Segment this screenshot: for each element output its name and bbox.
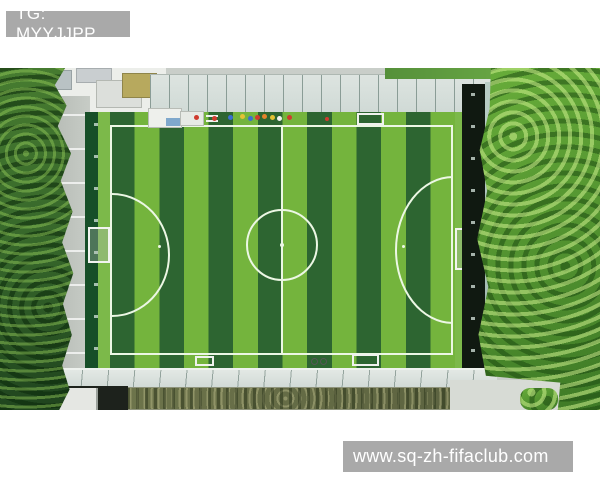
bicycle bbox=[320, 358, 327, 365]
bicycle bbox=[311, 358, 318, 365]
equipment-dot bbox=[255, 115, 260, 120]
equipment-dot bbox=[262, 114, 267, 119]
sideline-bench bbox=[195, 356, 214, 366]
goal-left bbox=[88, 227, 110, 263]
sideline-bench bbox=[352, 354, 379, 366]
watermark-top-left-text: TG: MYYJJPP bbox=[16, 4, 120, 44]
equipment-dot bbox=[287, 115, 292, 120]
page: TG: MYYJJPP www.sq-zh-fifaclub.com bbox=[0, 0, 600, 480]
penalty-spot-left bbox=[158, 245, 161, 248]
equipment-dot bbox=[240, 114, 245, 119]
equipment-dot bbox=[277, 116, 282, 121]
equipment-dot bbox=[194, 115, 199, 120]
equipment-dot bbox=[248, 116, 253, 121]
equipment-dot bbox=[212, 116, 217, 121]
sideline-table bbox=[180, 111, 204, 126]
equipment-dot bbox=[228, 115, 233, 120]
blue-mat bbox=[166, 118, 180, 126]
trees-right bbox=[476, 68, 600, 410]
aerial-photo bbox=[0, 68, 600, 410]
bushes bbox=[520, 388, 558, 410]
watermark-top-left: TG: MYYJJPP bbox=[6, 11, 130, 37]
penalty-spot-right bbox=[402, 245, 405, 248]
equipment-dot bbox=[325, 117, 329, 121]
watermark-bottom-right-text: www.sq-zh-fifaclub.com bbox=[353, 446, 549, 467]
sideline-bench bbox=[357, 113, 384, 125]
center-spot bbox=[280, 243, 284, 247]
equipment-dot bbox=[270, 115, 275, 120]
watermark-bottom-right: www.sq-zh-fifaclub.com bbox=[343, 441, 573, 472]
